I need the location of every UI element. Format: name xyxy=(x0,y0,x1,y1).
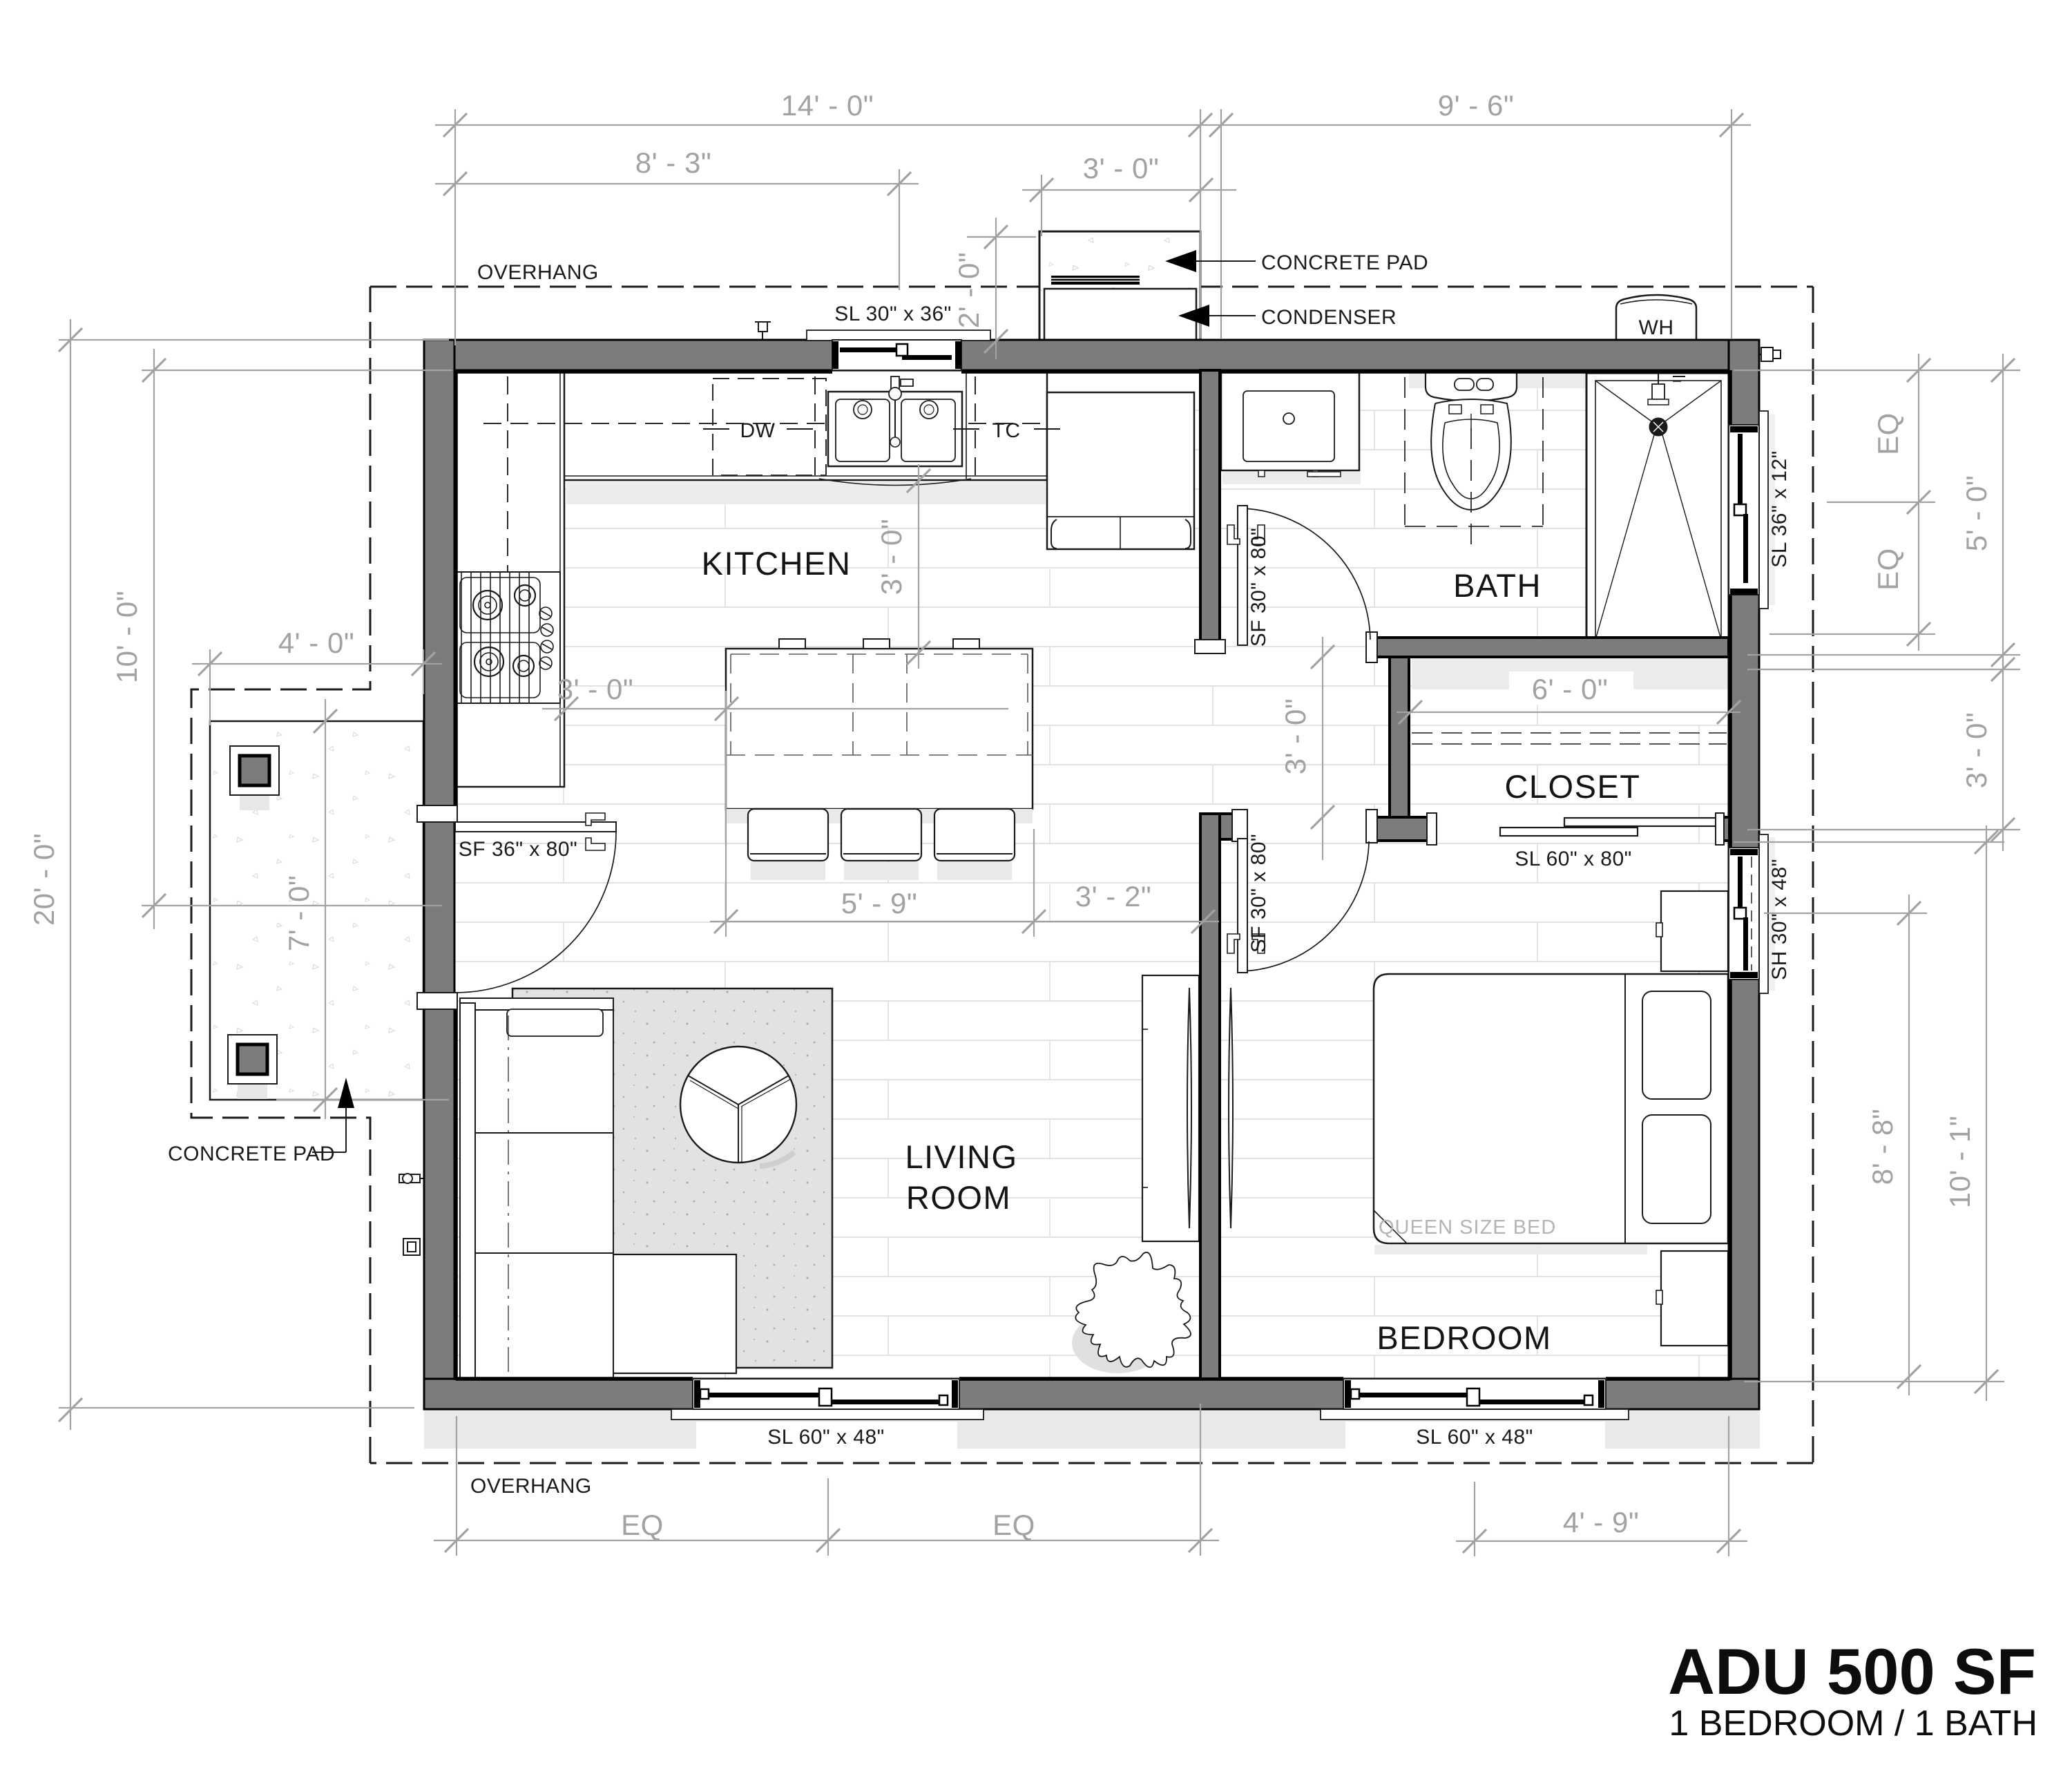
svg-text:20' - 0": 20' - 0" xyxy=(28,833,60,926)
svg-text:5' - 0": 5' - 0" xyxy=(1960,475,1993,551)
svg-text:3' - 2": 3' - 2" xyxy=(1075,880,1151,913)
svg-text:DW: DW xyxy=(740,419,776,442)
svg-text:14' - 0": 14' - 0" xyxy=(781,89,874,122)
svg-text:QUEEN SIZE BED: QUEEN SIZE BED xyxy=(1379,1216,1556,1239)
svg-text:OVERHANG: OVERHANG xyxy=(470,1475,592,1498)
svg-text:SL 60" x 48": SL 60" x 48" xyxy=(1416,1426,1533,1449)
svg-text:CLOSET: CLOSET xyxy=(1504,768,1640,805)
svg-text:SH 30" x 48": SH 30" x 48" xyxy=(1768,859,1791,980)
svg-text:SL 60" x 48": SL 60" x 48" xyxy=(767,1426,885,1449)
svg-text:BEDROOM: BEDROOM xyxy=(1376,1319,1551,1356)
svg-text:SL 36" x 12": SL 36" x 12" xyxy=(1768,450,1791,568)
svg-text:4' - 9": 4' - 9" xyxy=(1563,1506,1639,1538)
svg-text:10' - 1": 10' - 1" xyxy=(1944,1116,1976,1208)
svg-text:1 BEDROOM / 1 BATH: 1 BEDROOM / 1 BATH xyxy=(1669,1703,2037,1744)
svg-text:LIVING: LIVING xyxy=(905,1138,1017,1175)
svg-text:TC: TC xyxy=(992,419,1021,442)
svg-text:8' - 8": 8' - 8" xyxy=(1866,1109,1899,1185)
svg-text:7' - 0": 7' - 0" xyxy=(282,875,315,951)
svg-text:2' - 0": 2' - 0" xyxy=(952,252,985,328)
svg-text:4' - 0": 4' - 0" xyxy=(278,627,354,659)
svg-text:OVERHANG: OVERHANG xyxy=(477,261,599,284)
svg-text:SF 36" x 80": SF 36" x 80" xyxy=(459,838,577,861)
svg-text:EQ: EQ xyxy=(1872,548,1904,591)
svg-text:3' - 0": 3' - 0" xyxy=(875,519,908,595)
svg-text:SF 30" x 80": SF 30" x 80" xyxy=(1247,528,1270,647)
svg-text:EQ: EQ xyxy=(1872,412,1904,455)
svg-text:6' - 0": 6' - 0" xyxy=(1532,673,1608,705)
svg-text:ADU 500 SF: ADU 500 SF xyxy=(1668,1635,2036,1708)
svg-text:SL 60" x 80": SL 60" x 80" xyxy=(1515,848,1632,870)
svg-text:8' - 3": 8' - 3" xyxy=(635,146,711,179)
svg-text:CONCRETE PAD: CONCRETE PAD xyxy=(1261,251,1428,274)
svg-text:KITCHEN: KITCHEN xyxy=(702,545,852,582)
svg-text:ROOM: ROOM xyxy=(906,1179,1011,1216)
svg-text:SL 30" x 36": SL 30" x 36" xyxy=(834,303,952,325)
svg-text:9' - 6": 9' - 6" xyxy=(1438,89,1514,122)
svg-text:CONDENSER: CONDENSER xyxy=(1261,306,1397,329)
svg-text:EQ: EQ xyxy=(621,1509,664,1541)
svg-text:5' - 9": 5' - 9" xyxy=(841,887,917,919)
svg-text:CONCRETE PAD: CONCRETE PAD xyxy=(168,1143,335,1165)
svg-text:3' - 0": 3' - 0" xyxy=(1279,698,1312,774)
svg-text:EQ: EQ xyxy=(992,1509,1035,1541)
svg-text:WH: WH xyxy=(1639,316,1674,339)
svg-text:SF 30" x 80": SF 30" x 80" xyxy=(1247,834,1270,953)
svg-text:3' - 0": 3' - 0" xyxy=(1083,152,1159,184)
svg-text:3' - 0": 3' - 0" xyxy=(1960,712,1993,788)
svg-text:10' - 0": 10' - 0" xyxy=(111,591,143,683)
svg-text:3' - 0": 3' - 0" xyxy=(557,673,633,705)
svg-text:BATH: BATH xyxy=(1453,567,1542,604)
